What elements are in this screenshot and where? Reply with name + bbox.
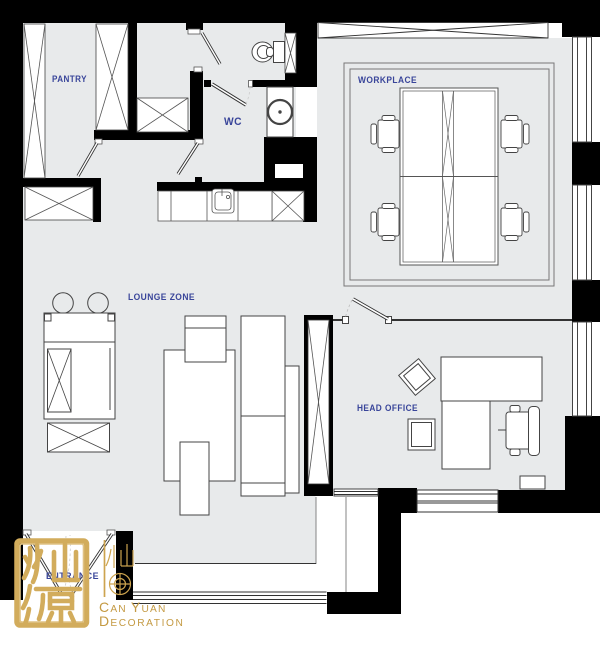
svg-text:WC: WC [224, 116, 242, 128]
svg-text:LOUNGE ZONE: LOUNGE ZONE [128, 291, 195, 302]
svg-text:HEAD OFFICE: HEAD OFFICE [357, 402, 418, 413]
svg-text:PANTRY: PANTRY [52, 73, 87, 84]
svg-text:WORKPLACE: WORKPLACE [358, 74, 417, 85]
